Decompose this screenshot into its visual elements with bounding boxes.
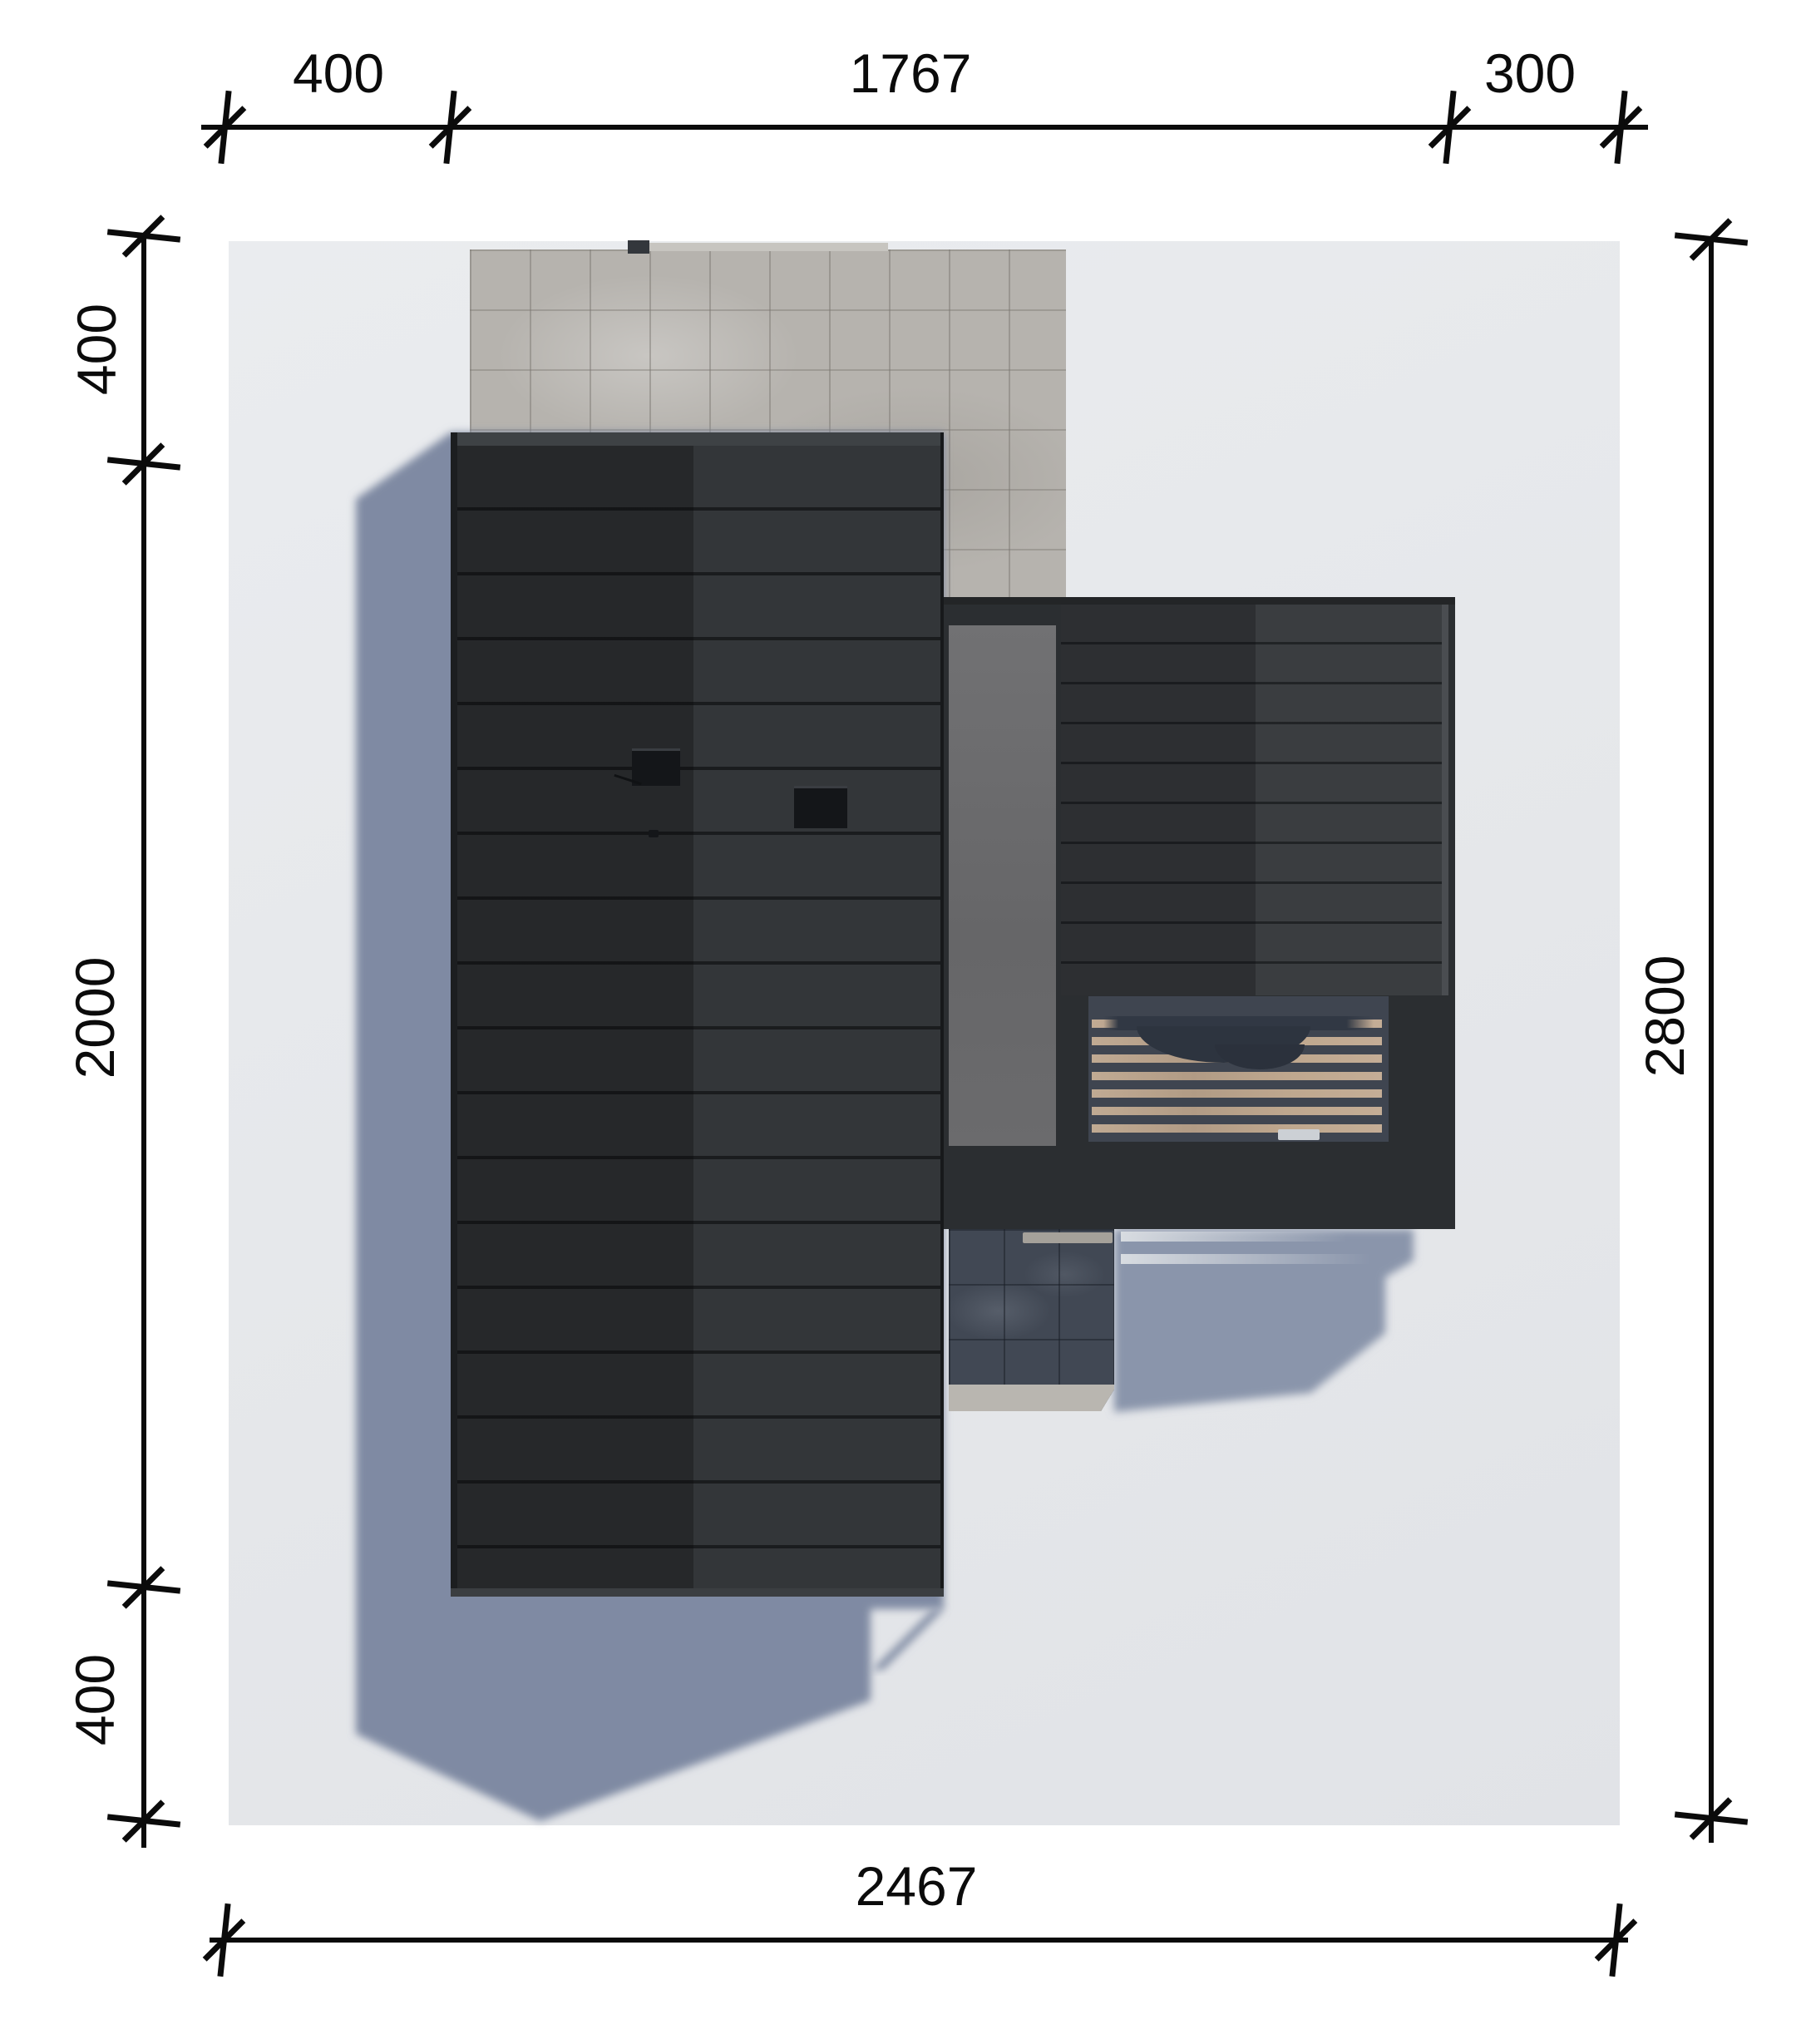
shadow-light-streak-1 [1121, 1232, 1347, 1242]
pergola-slat [1092, 1124, 1382, 1133]
dimension-line-bottom [210, 1938, 1628, 1943]
wing-roof-block [944, 597, 1455, 1229]
pergola-slat [1092, 1107, 1382, 1115]
dim-label-top-right: 300 [1484, 46, 1576, 101]
dimension-line-top [201, 125, 1648, 130]
walkway-highlight [1023, 1232, 1113, 1243]
walkway-light-band [949, 1385, 1114, 1411]
pergola-light-patch [1278, 1129, 1320, 1140]
dim-label-left-middle: 2000 [67, 957, 122, 1079]
dim-label-right: 2800 [1637, 955, 1692, 1078]
roof-vent-1 [632, 748, 680, 786]
dim-label-top-middle: 1767 [850, 46, 972, 101]
main-roof-block [451, 432, 944, 1597]
wing-plank-seams [1061, 605, 1448, 995]
main-roof-parapet-top [451, 432, 944, 446]
roof-vent-dot [649, 830, 659, 837]
main-roof-plank-seams [451, 446, 944, 1597]
pergola-slat [1092, 1072, 1382, 1080]
gray-flat-roof [949, 625, 1056, 1146]
walkway-paving [949, 1229, 1114, 1411]
pergola-slat [1092, 1089, 1382, 1098]
dimension-line-right [1709, 238, 1714, 1843]
dim-label-left-bottom: 400 [67, 1654, 122, 1745]
wing-roof-edge-right [1442, 605, 1448, 995]
main-roof-edge-left [451, 432, 457, 1597]
roof-vent-2 [794, 786, 847, 828]
pergola-opening [1088, 996, 1389, 1142]
main-roof-parapet-bottom [451, 1588, 944, 1597]
wing-parapet-top [944, 597, 1455, 605]
dim-label-bottom: 2467 [856, 1859, 978, 1913]
dimension-line-left [141, 235, 146, 1848]
dim-label-left-top: 400 [69, 304, 124, 395]
dim-label-top-left: 400 [293, 46, 384, 101]
pergola-shadow-curve-2 [1215, 1044, 1305, 1069]
roof-plan-canvas: 400 1767 300 2467 400 2000 400 2800 [0, 0, 1806, 2044]
wing-plank-roof [1061, 605, 1448, 995]
parapet-edge-shadow [872, 1609, 944, 1670]
shadow-light-streak-2 [1121, 1254, 1370, 1264]
